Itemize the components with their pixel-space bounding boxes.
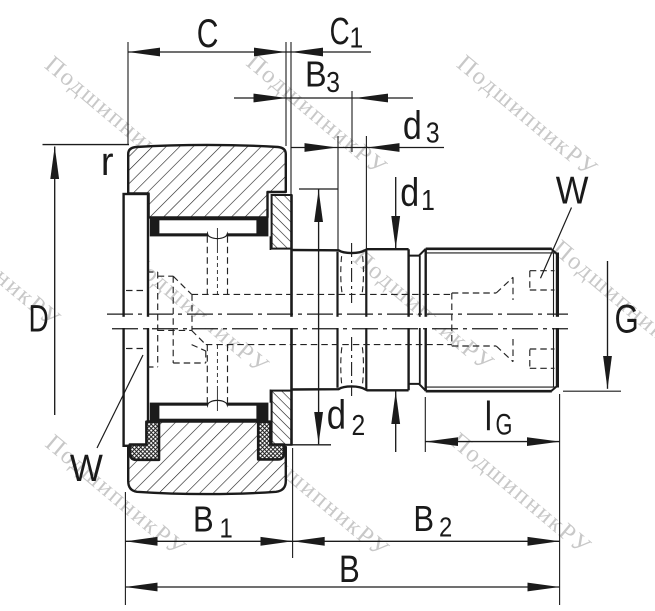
svg-text:B: B (193, 499, 214, 540)
svg-text:W: W (556, 169, 589, 212)
svg-text:B: B (413, 499, 434, 540)
svg-text:r: r (101, 140, 114, 184)
svg-text:d: d (403, 102, 422, 147)
svg-text:C: C (330, 11, 350, 53)
svg-text:3: 3 (426, 117, 440, 149)
svg-text:W: W (70, 447, 104, 490)
svg-text:2: 2 (439, 511, 452, 543)
svg-text:1: 1 (350, 22, 364, 54)
svg-text:B: B (305, 55, 327, 95)
svg-text:B: B (339, 549, 360, 591)
svg-text:d: d (400, 170, 419, 215)
svg-text:D: D (29, 299, 49, 341)
svg-text:C: C (197, 12, 219, 56)
svg-text:d: d (327, 393, 346, 438)
svg-text:1: 1 (220, 512, 233, 544)
svg-text:2: 2 (352, 409, 366, 441)
svg-text:3: 3 (326, 66, 340, 98)
svg-text:l: l (485, 392, 492, 438)
svg-text:G: G (496, 407, 513, 441)
svg-text:1: 1 (421, 184, 435, 216)
svg-text:G: G (615, 297, 639, 342)
